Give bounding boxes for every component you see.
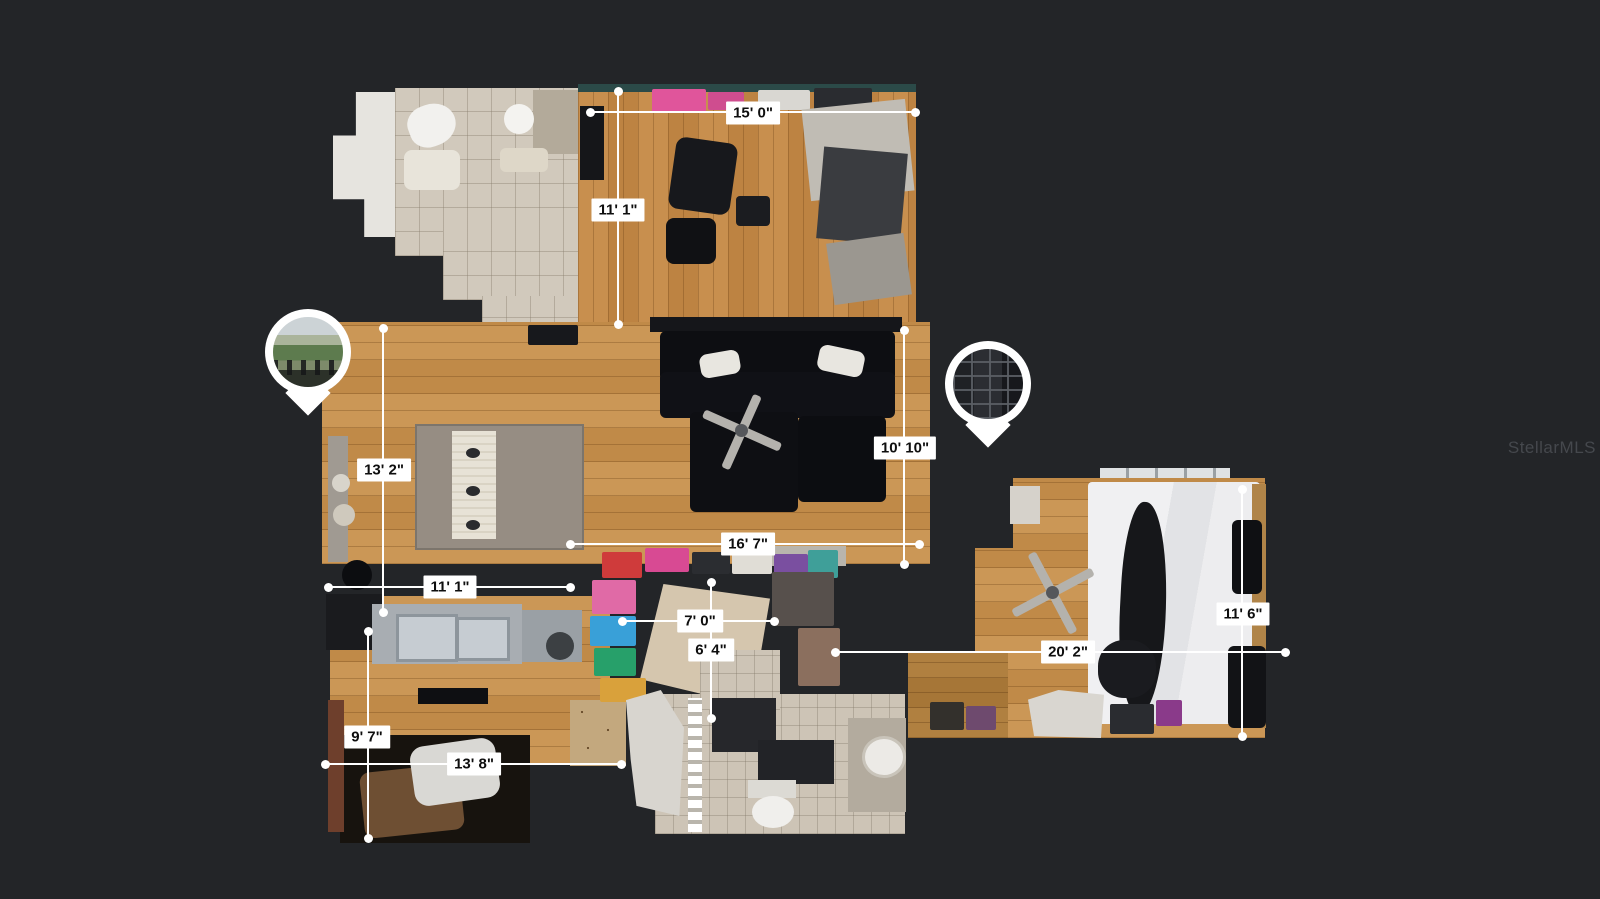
dimension-label-dining-area-depth: 13' 2" (357, 459, 411, 482)
dining-table (415, 424, 584, 550)
dimension-label-kitchen-width: 13' 8" (447, 753, 501, 776)
cooktop (546, 632, 574, 660)
dimension-label-top-room-width: 15' 0" (726, 102, 780, 125)
floor-plan-canvas: 15' 0" 11' 1" 10' 10" 13' 2" 16' 7" 11' … (0, 0, 1600, 899)
mosaic-rug (570, 700, 626, 766)
entry-clutter (1156, 700, 1182, 726)
living-wall-shadow (650, 317, 902, 332)
bedroom-notch (975, 478, 1013, 548)
sink-2 (862, 736, 906, 778)
hall-stools (528, 325, 578, 345)
sideboard (328, 436, 348, 562)
entry-clutter (930, 702, 964, 730)
bath-mat-1 (404, 150, 460, 190)
office-ottoman (666, 218, 716, 264)
sofa-ottoman (798, 416, 886, 502)
french-door-pin[interactable] (945, 341, 1031, 427)
kitchen-sink-2 (456, 617, 510, 661)
stove-mat (418, 688, 488, 704)
dimension-label-kitchen-depth: 9' 7" (344, 726, 390, 749)
balcony-photo (273, 317, 343, 387)
bedroom-item-right (1228, 646, 1266, 728)
office-side-table (736, 196, 770, 226)
sideboard-bowl (332, 474, 350, 492)
office-clutter-pink (652, 89, 706, 113)
shower-door-track (688, 698, 702, 832)
runner-decor (466, 486, 480, 496)
runner-decor (466, 520, 480, 530)
office-dark-item-left (580, 106, 604, 180)
bedroom-chair-right (1232, 520, 1262, 594)
kitchen-sink-1 (396, 614, 458, 662)
closet-shoes (594, 648, 636, 676)
office-desk-lower (826, 233, 912, 305)
office-chair (667, 136, 738, 216)
dimension-label-top-room-depth: 11' 1" (591, 199, 644, 222)
ceiling-fan-hub (735, 424, 748, 437)
closet-rack-right (772, 572, 834, 626)
dimension-label-bedroom-depth: 11' 6" (1216, 603, 1269, 626)
clothes-pile-2 (1098, 640, 1156, 698)
runner-decor (466, 448, 480, 458)
dimension-label-living-room-depth: 10' 10" (874, 437, 936, 460)
sink-1 (504, 104, 534, 134)
dimension-label-living-room-width: 16' 7" (721, 533, 775, 556)
wood-ledge (328, 700, 344, 832)
stellar-mls-watermark: StellarMLS (1508, 438, 1596, 458)
bedroom-dresser (1010, 486, 1040, 524)
entry-hall-floor (443, 230, 585, 300)
bath-mat-2 (500, 148, 548, 172)
bedroom-door-blob (1028, 690, 1104, 738)
dark-rug-2 (758, 740, 834, 784)
closet-shoes (592, 580, 636, 614)
dimension-label-dining-area-width: 11' 1" (423, 576, 476, 599)
balcony-view-pin[interactable] (265, 309, 351, 395)
closet-clutter (602, 552, 642, 578)
sideboard-plate (333, 504, 355, 526)
entry-clutter (966, 706, 996, 730)
closet-rack-right-2 (798, 628, 840, 686)
closet-clutter (645, 548, 689, 572)
french-door-photo (953, 349, 1023, 419)
entry-clutter (1110, 704, 1154, 734)
office-desk-items (816, 147, 908, 246)
bedroom-fan-hub (1046, 586, 1059, 599)
dimension-label-closet-depth: 6' 4" (688, 639, 734, 662)
toilet-2-bowl (752, 796, 794, 828)
dimension-label-bedroom-width: 20' 2" (1041, 641, 1095, 664)
dimension-label-closet-width: 7' 0" (677, 610, 723, 633)
